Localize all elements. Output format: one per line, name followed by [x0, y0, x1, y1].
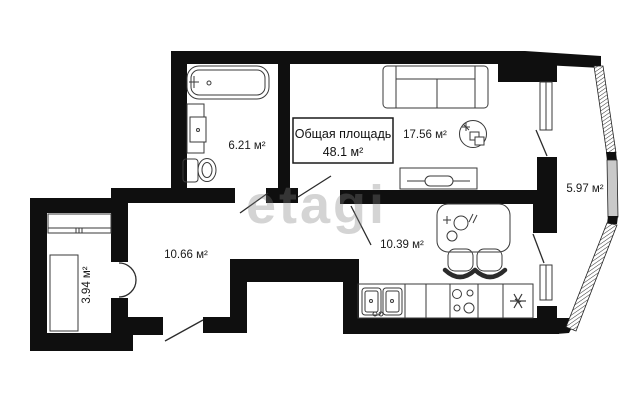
window-kitchen-balcony: [540, 265, 552, 300]
dining-table: [437, 204, 510, 252]
room-label-living: 17.56 м²: [403, 129, 447, 141]
stove: [453, 290, 475, 314]
total-area-value: 48.1 м²: [323, 145, 364, 159]
window-living-balcony: [540, 82, 552, 130]
wardrobe-cabinet: [50, 255, 78, 331]
bathtub: [187, 66, 269, 99]
room-label-wardrobe: 3.94 м²: [81, 266, 93, 303]
sofa: [383, 66, 488, 108]
fridge: [503, 284, 533, 318]
total-area-title: Общая площадь: [295, 127, 392, 141]
floor-plan-svg: etagi Общая площадь 48.1 м² 6.21 м² 17.5…: [0, 0, 640, 400]
wardrobe-shelf: [48, 214, 111, 233]
tv-stand: [400, 168, 477, 189]
room-label-hallway: 10.66 м²: [164, 249, 208, 261]
total-area-box: Общая площадь 48.1 м²: [293, 118, 393, 163]
door-living-balcony: [536, 130, 547, 156]
floor-plan-canvas: etagi Общая площадь 48.1 м² 6.21 м² 17.5…: [0, 0, 640, 400]
room-label-bathroom: 6.21 м²: [228, 140, 265, 152]
door-kitchen-balcony: [533, 234, 544, 263]
watermark-logo: etagi: [246, 175, 387, 235]
room-label-balcony: 5.97 м²: [566, 183, 603, 195]
washbasin: [187, 104, 206, 153]
toilet: [183, 159, 216, 183]
snowflake-icon: [510, 294, 526, 308]
coffee-table: [460, 121, 487, 148]
kitchen-sink: [362, 288, 402, 316]
door-wardrobe-arc: [119, 263, 136, 297]
balcony-glazing: [566, 66, 618, 331]
room-label-kitchen: 10.39 м²: [380, 239, 424, 251]
door-entrance: [165, 320, 203, 341]
chairs: [445, 249, 505, 277]
